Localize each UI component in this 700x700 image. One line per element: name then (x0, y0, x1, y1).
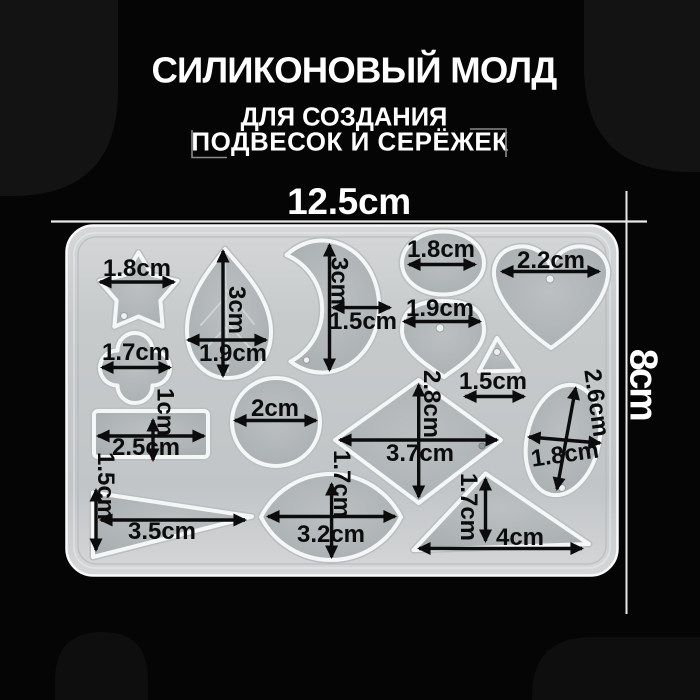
svg-text:1.5cm: 1.5cm (92, 452, 119, 520)
svg-text:4cm: 4cm (496, 524, 544, 551)
svg-text:3.5cm: 3.5cm (128, 518, 196, 545)
svg-text:12.5cm: 12.5cm (287, 181, 411, 222)
svg-text:1.8cm: 1.8cm (407, 236, 475, 263)
svg-text:1.9cm: 1.9cm (406, 295, 474, 322)
svg-text:1.5cm: 1.5cm (459, 368, 527, 395)
svg-text:2cm: 2cm (251, 395, 299, 422)
svg-text:1.7cm: 1.7cm (328, 450, 355, 518)
svg-text:3cm: 3cm (223, 286, 250, 334)
svg-text:8cm: 8cm (622, 349, 665, 420)
svg-text:3cm: 3cm (326, 257, 353, 305)
svg-text:3.7cm: 3.7cm (386, 440, 454, 467)
svg-text:1.7cm: 1.7cm (102, 339, 170, 366)
svg-text:2.8cm: 2.8cm (418, 370, 445, 438)
svg-text:СИЛИКОНОВЫЙ МОЛД: СИЛИКОНОВЫЙ МОЛД (151, 49, 557, 91)
svg-text:2.5cm: 2.5cm (112, 434, 180, 461)
svg-text:1.8cm: 1.8cm (103, 255, 171, 282)
svg-text:1cm: 1cm (152, 388, 179, 436)
svg-text:ПОДВЕСОК И СЕРЁЖЕК: ПОДВЕСОК И СЕРЁЖЕК (191, 127, 508, 157)
svg-text:1.9cm: 1.9cm (199, 340, 267, 367)
svg-text:3.2cm: 3.2cm (297, 521, 365, 548)
svg-text:1.7cm: 1.7cm (455, 473, 482, 541)
svg-text:1.5cm: 1.5cm (329, 308, 397, 335)
